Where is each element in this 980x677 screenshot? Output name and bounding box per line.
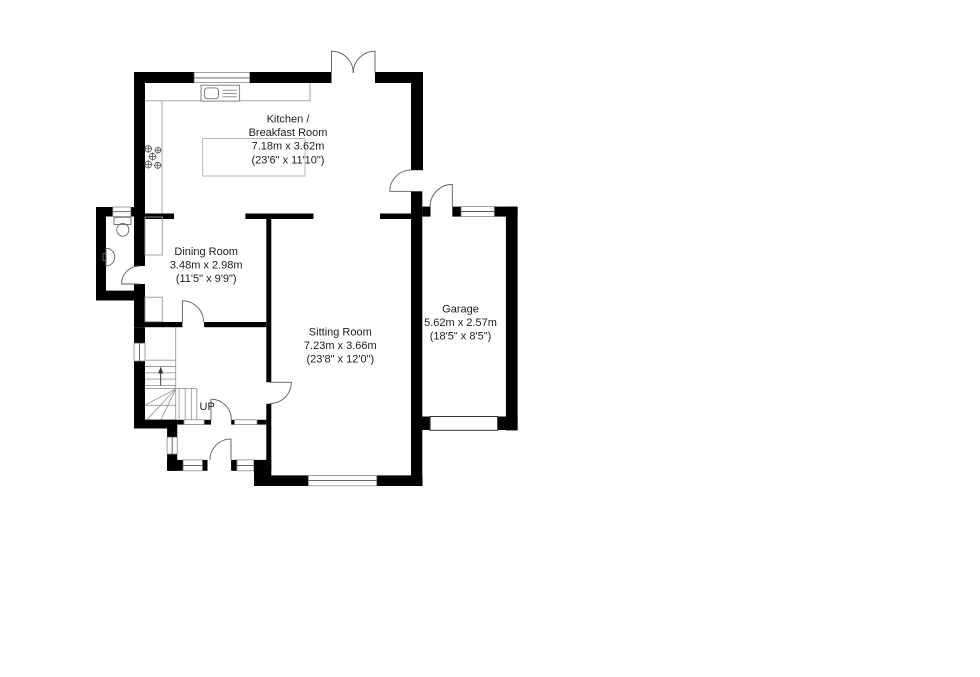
svg-text:7.23m x 3.66m: 7.23m x 3.66m xyxy=(304,340,377,352)
svg-text:(23'8" x 12'0"): (23'8" x 12'0") xyxy=(306,354,374,366)
svg-text:Sitting Room: Sitting Room xyxy=(309,327,372,339)
svg-text:Dining Room: Dining Room xyxy=(174,246,238,258)
svg-text:Breakfast Room: Breakfast Room xyxy=(249,127,328,139)
svg-text:(23'6" x 11'10"): (23'6" x 11'10") xyxy=(252,154,325,166)
svg-text:5.62m x 2.57m: 5.62m x 2.57m xyxy=(424,317,497,329)
svg-text:3.48m x 2.98m: 3.48m x 2.98m xyxy=(170,259,243,271)
svg-text:(11'5" x 9'9"): (11'5" x 9'9") xyxy=(176,273,237,285)
svg-text:Kitchen /: Kitchen / xyxy=(267,114,311,126)
svg-text:(18'5" x 8'5"): (18'5" x 8'5") xyxy=(430,331,492,343)
svg-text:7.18m x 3.62m: 7.18m x 3.62m xyxy=(252,141,325,153)
svg-text:UP: UP xyxy=(200,401,215,413)
svg-text:Garage: Garage xyxy=(442,304,479,316)
